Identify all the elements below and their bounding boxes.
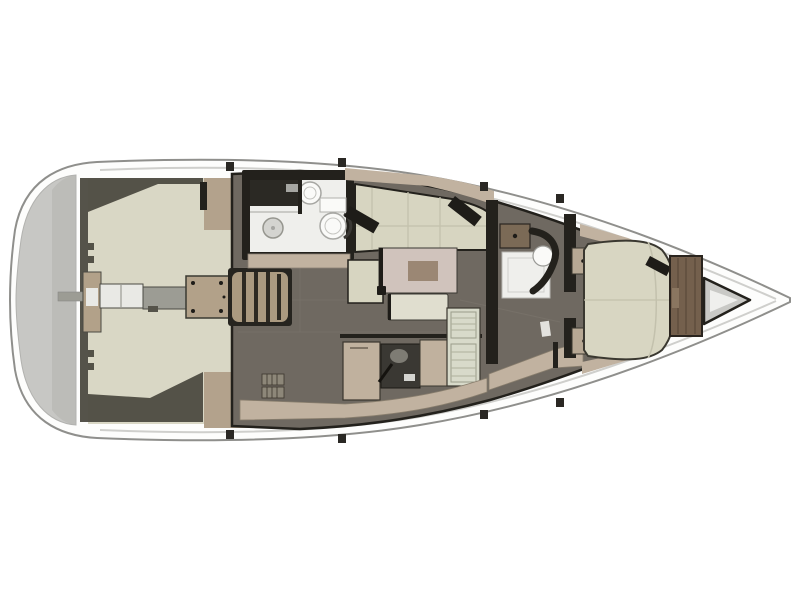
salon-table-inlay xyxy=(408,261,438,281)
step-gap xyxy=(254,272,258,322)
galley-counter xyxy=(420,340,447,386)
toilet-bowl xyxy=(320,213,346,239)
salon-bench-edge xyxy=(388,294,391,320)
step-gap xyxy=(266,272,270,322)
aft-head xyxy=(242,170,354,268)
floor-plan-canvas xyxy=(0,0,800,600)
fwd-head-bulkhead-aft xyxy=(486,200,498,364)
faucet xyxy=(286,184,298,192)
sink xyxy=(299,182,321,204)
aft-head-cabinet-band xyxy=(248,254,350,268)
cockpit-table-support xyxy=(58,292,86,301)
toilet-tank xyxy=(320,198,346,212)
cockpit-table-notch xyxy=(148,306,158,312)
salon-bench xyxy=(388,294,448,320)
salon-seat-side xyxy=(348,260,383,303)
galley-fridge xyxy=(343,342,380,400)
vanity-knob xyxy=(513,234,517,238)
step-gap xyxy=(277,274,281,320)
fwd-cabin-door-gap xyxy=(564,292,576,318)
shower-drain-dot xyxy=(271,226,275,230)
aft-head-counter xyxy=(250,180,298,206)
aft-head-partition xyxy=(298,180,302,214)
stove-glint xyxy=(404,374,415,381)
cockpit-locker-box xyxy=(186,276,230,318)
yacht-floor-plan-diagram xyxy=(0,0,800,600)
galley-sink-unit xyxy=(447,308,480,386)
companionway-steps xyxy=(228,268,292,326)
band-seam-dark xyxy=(553,342,558,368)
mast-post xyxy=(377,286,386,295)
cockpit-table-aft-leaf xyxy=(143,287,186,309)
coaming-step-dark xyxy=(200,182,207,210)
step-gap xyxy=(242,272,246,322)
stove-pot xyxy=(390,349,408,363)
cockpit-table-pedestal-inner xyxy=(86,288,98,306)
